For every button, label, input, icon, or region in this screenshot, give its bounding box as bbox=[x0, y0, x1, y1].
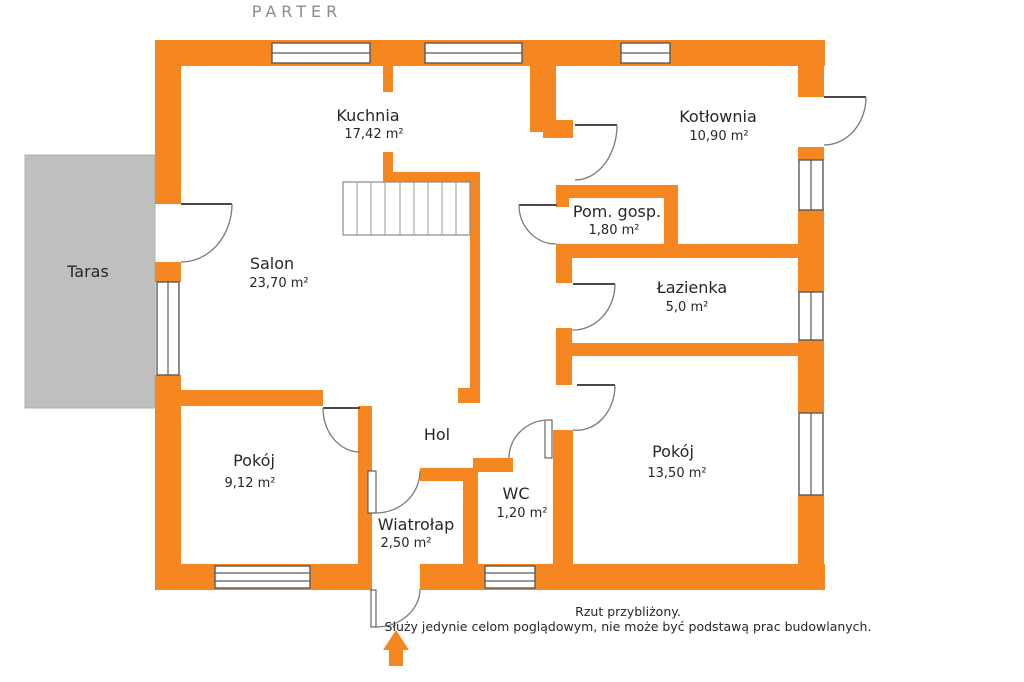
window-bottom-wc bbox=[485, 566, 535, 588]
wall-kitchen-salon-1 bbox=[383, 66, 393, 92]
page-title: PARTER bbox=[252, 2, 343, 21]
wall-bathroom-room bbox=[570, 343, 798, 356]
wall-left-mid bbox=[155, 262, 181, 282]
window-left-salon bbox=[157, 282, 179, 375]
doors bbox=[181, 97, 866, 627]
wall-right-4 bbox=[798, 340, 824, 413]
room-label-hol: Hol bbox=[424, 425, 450, 444]
window-right-room bbox=[799, 413, 823, 495]
room-label-pom-gosp: Pom. gosp. bbox=[573, 202, 661, 221]
window-top-2 bbox=[425, 43, 522, 63]
wall-wc-top bbox=[473, 458, 513, 472]
door-kitchen-boiler bbox=[575, 125, 617, 180]
wall-left-upper bbox=[155, 66, 181, 204]
room-area-salon: 23,70 m² bbox=[249, 276, 308, 291]
door-exterior-boiler bbox=[824, 97, 866, 145]
wall-pomgosp-left bbox=[556, 198, 569, 207]
terrace-area bbox=[25, 155, 155, 408]
wall-stairs-foot bbox=[458, 388, 480, 403]
room-area-pokoj-duzy: 13,50 m² bbox=[647, 466, 706, 481]
wall-right-5 bbox=[798, 495, 824, 564]
floor-plan-page: PARTER Kuchnia 17,42 m² Kotłownia 10,90 … bbox=[0, 0, 1024, 682]
room-area-pom-gosp: 1,80 m² bbox=[589, 223, 640, 238]
wall-stairs-top bbox=[383, 172, 480, 182]
window-bottom-room bbox=[215, 566, 310, 588]
disclaimer-line-2: Służy jedynie celom poglądowym, nie może… bbox=[385, 619, 872, 634]
wall-right-2 bbox=[798, 147, 824, 160]
room-label-pokoj-duzy: Pokój bbox=[652, 442, 694, 461]
disclaimer-line-1: Rzut przybliżony. bbox=[575, 604, 681, 619]
room-area-wc: 1,20 m² bbox=[497, 506, 548, 521]
wall-salon-room bbox=[181, 390, 323, 406]
room-label-kuchnia: Kuchnia bbox=[336, 106, 399, 125]
window-right-boiler bbox=[799, 160, 823, 210]
wall-bottom-right bbox=[420, 564, 825, 590]
room-label-kotlownia: Kotłownia bbox=[679, 107, 757, 126]
room-label-pokoj-maly: Pokój bbox=[233, 451, 275, 470]
wall-right-1 bbox=[798, 66, 824, 97]
room-label-taras: Taras bbox=[66, 262, 109, 281]
door-room-small bbox=[323, 408, 360, 452]
room-label-wc: WC bbox=[503, 484, 530, 503]
door-room-large bbox=[573, 385, 615, 430]
stairs-outline bbox=[343, 182, 470, 235]
window-top-3 bbox=[621, 43, 670, 63]
wall-stairs-right bbox=[470, 182, 480, 388]
room-area-wiatrolap: 2,50 m² bbox=[381, 536, 432, 551]
room-area-lazienka: 5,0 m² bbox=[666, 300, 709, 315]
wall-kitchen-salon-2 bbox=[383, 152, 393, 172]
stairs bbox=[343, 182, 470, 235]
door-bathroom bbox=[572, 284, 615, 330]
wall-wc-left bbox=[463, 468, 478, 564]
room-area-pokoj-maly: 9,12 m² bbox=[225, 476, 276, 491]
room-label-wiatrolap: Wiatrołap bbox=[378, 515, 455, 534]
wall-hall-bathroom-1 bbox=[556, 258, 572, 283]
wall-right-3 bbox=[798, 210, 824, 292]
door-wc bbox=[509, 420, 552, 458]
wall-boiler-jamb bbox=[543, 120, 573, 138]
wall-pomgosp-top bbox=[556, 185, 678, 198]
wall-left-lower bbox=[155, 375, 181, 564]
room-area-kotlownia: 10,90 m² bbox=[689, 129, 748, 144]
door-terrace-salon bbox=[181, 204, 232, 262]
room-label-lazienka: Łazienka bbox=[656, 278, 727, 297]
door-pom-gosp bbox=[519, 205, 557, 244]
room-area-kuchnia: 17,42 m² bbox=[344, 127, 403, 142]
window-right-bathroom bbox=[799, 292, 823, 340]
wall-hall-room-right bbox=[553, 430, 573, 564]
window-top-1 bbox=[272, 43, 370, 63]
wall-hall-bathroom-2 bbox=[556, 328, 572, 385]
door-vestibule-hall bbox=[368, 471, 420, 513]
floor-plan-drawing: PARTER Kuchnia 17,42 m² Kotłownia 10,90 … bbox=[0, 0, 1024, 682]
entrance-arrow-icon bbox=[383, 630, 409, 666]
wall-bathroom-top bbox=[556, 244, 798, 258]
room-label-salon: Salon bbox=[250, 254, 294, 273]
